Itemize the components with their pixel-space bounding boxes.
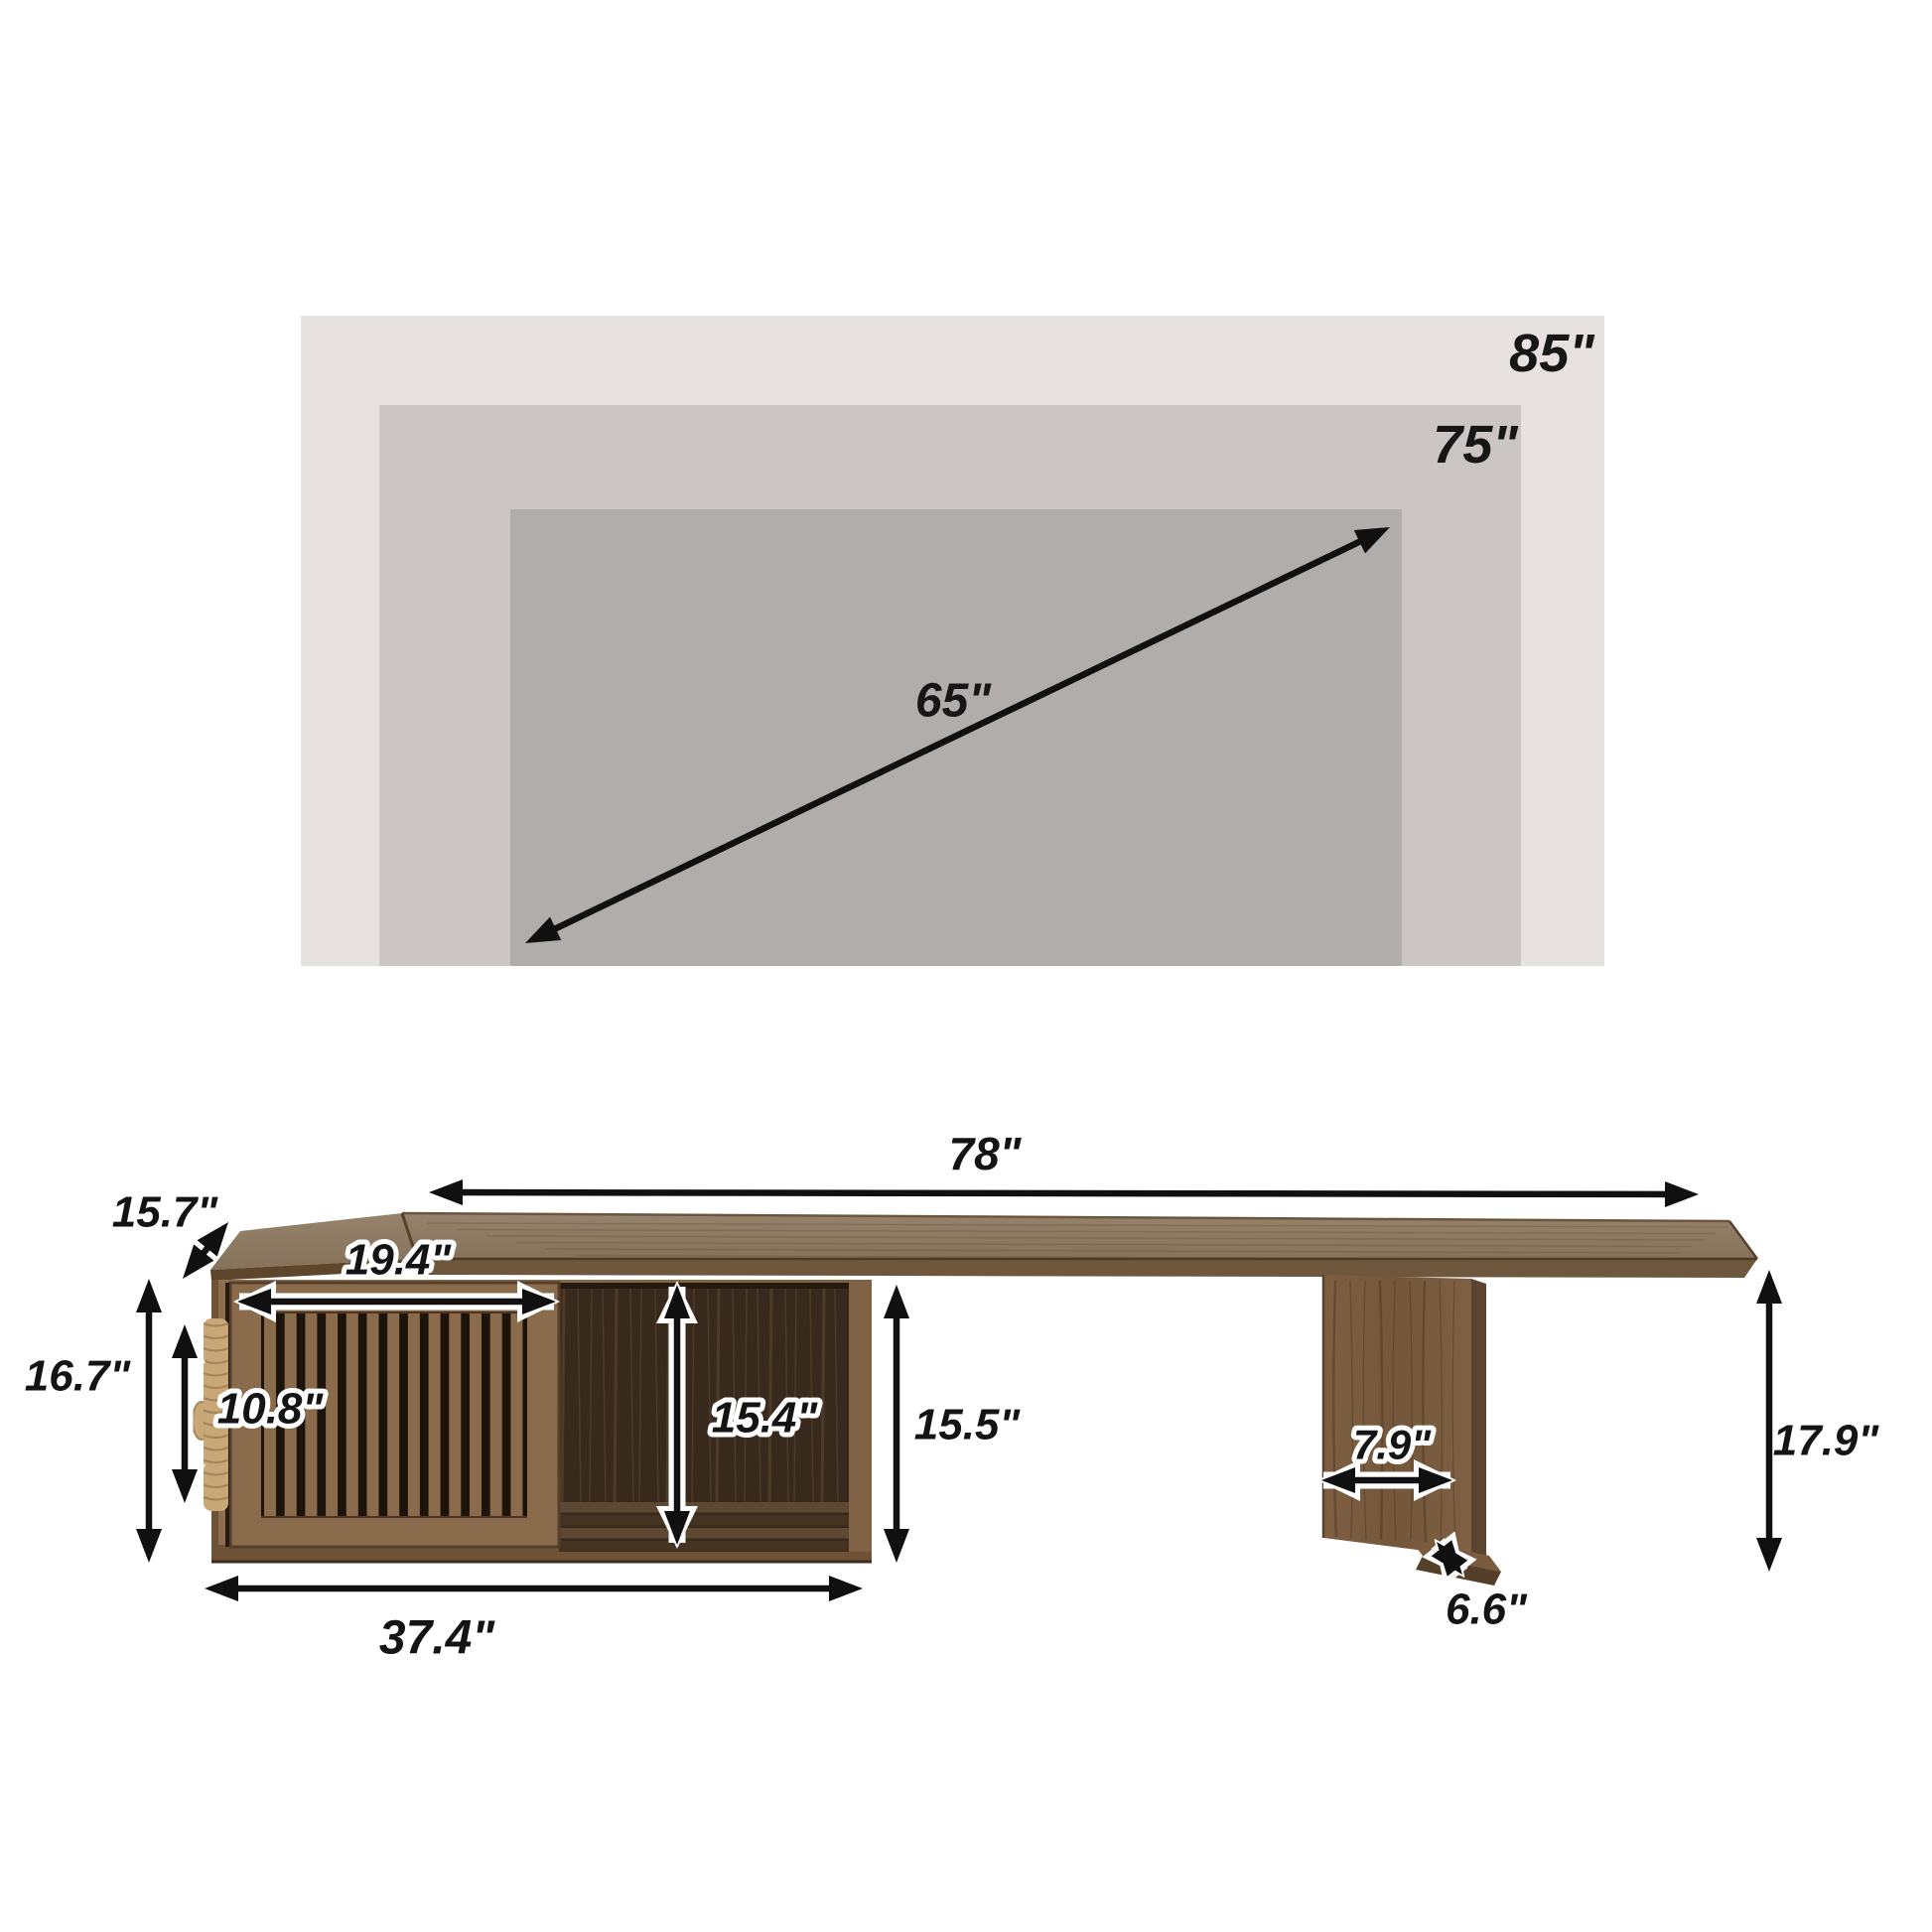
width-7-9-label: 7.9" <box>1353 1422 1432 1468</box>
door-slat <box>326 1312 338 1517</box>
height-10-8-label: 10.8" <box>217 1385 325 1434</box>
width-37-4-label: 37.4" <box>379 1612 495 1665</box>
tabletop-front-edge <box>417 1259 1757 1278</box>
tv-size-label-0: 85" <box>1509 324 1595 383</box>
tv-size-label-2: 65" <box>915 675 992 728</box>
product-dimension-diagram: 85"75"65" <box>0 0 1932 1932</box>
door-slat <box>449 1312 461 1517</box>
height-15-5-label: 15.5" <box>914 1401 1022 1449</box>
depth-6-6-label: 6.6" <box>1446 1586 1528 1634</box>
width-78-label: 78" <box>949 1128 1023 1179</box>
height-15-4-label: 15.4" <box>712 1394 819 1443</box>
door-slat <box>346 1312 358 1517</box>
door-slat <box>429 1312 441 1517</box>
door-slat <box>470 1312 482 1517</box>
door-slat <box>510 1312 522 1517</box>
tv-size-label-1: 75" <box>1433 415 1519 475</box>
door-slat <box>387 1312 399 1517</box>
door-slat <box>408 1312 420 1517</box>
compartment-right-wall <box>849 1283 872 1552</box>
height-16-7-label: 16.7" <box>25 1352 132 1401</box>
width-19-4-label: 19.4" <box>345 1236 453 1285</box>
height-17-9-label: 17.9" <box>1773 1417 1880 1465</box>
compartment-top-shadow <box>559 1283 849 1289</box>
leg-front-panel <box>1323 1275 1471 1557</box>
tv-size-comparison-diagram: 85"75"65" <box>301 316 1604 966</box>
door-slat <box>367 1312 379 1517</box>
door-slat <box>490 1312 502 1517</box>
depth-15-7-label: 15.7" <box>112 1188 219 1237</box>
leg-side-edge <box>1471 1279 1486 1560</box>
